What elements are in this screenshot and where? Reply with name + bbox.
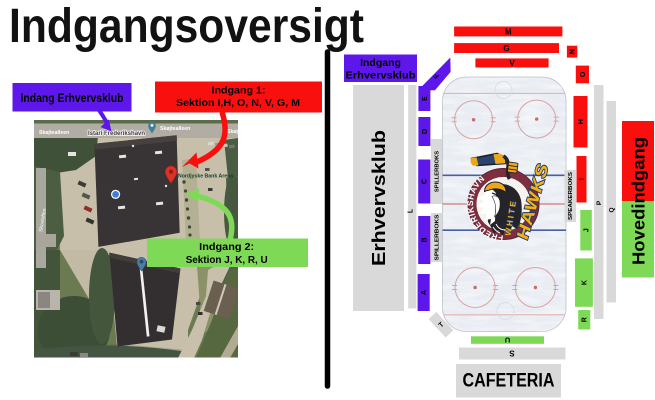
svg-text:SPEAKERBOKS: SPEAKERBOKS xyxy=(568,172,574,220)
svg-text:Sektion J, K, R, U: Sektion J, K, R, U xyxy=(186,254,268,266)
svg-text:Indgang: Indgang xyxy=(360,57,401,69)
svg-text:E: E xyxy=(422,96,429,101)
svg-text:Indgang 2:: Indgang 2: xyxy=(199,241,254,253)
svg-text:B: B xyxy=(422,237,429,242)
svg-text:Q: Q xyxy=(608,207,615,212)
svg-text:U: U xyxy=(505,335,510,344)
svg-text:R: R xyxy=(582,317,589,322)
svg-text:N: N xyxy=(570,49,577,54)
svg-text:Nordjyske Bank Arena: Nordjyske Bank Arena xyxy=(178,174,233,180)
svg-text:SPILLERBOKS: SPILLERBOKS xyxy=(435,151,441,192)
svg-text:SPILLERBOKS: SPILLERBOKS xyxy=(435,214,441,260)
svg-text:S: S xyxy=(509,349,515,358)
svg-text:Skøjtealleen: Skøjtealleen xyxy=(160,126,190,132)
svg-text:C: C xyxy=(422,179,429,184)
svg-text:Indgangsoversigt: Indgangsoversigt xyxy=(9,0,364,53)
svg-text:Indang Erhvervsklub: Indang Erhvervsklub xyxy=(21,93,124,105)
svg-text:J: J xyxy=(583,228,590,232)
svg-text:K: K xyxy=(581,280,588,285)
svg-text:A: A xyxy=(421,290,428,295)
svg-text:Sektion I,H, O, N, V, G, M: Sektion I,H, O, N, V, G, M xyxy=(176,97,300,109)
svg-text:M: M xyxy=(505,27,512,36)
svg-text:I: I xyxy=(579,178,586,180)
svg-text:D: D xyxy=(422,129,429,134)
svg-text:L: L xyxy=(407,208,414,213)
svg-text:Erhvervsklub: Erhvervsklub xyxy=(369,130,389,266)
svg-text:Istari Frederikshavn: Istari Frederikshavn xyxy=(88,131,145,137)
svg-text:Skøj: Skøj xyxy=(227,129,239,135)
svg-text:CAFETERIA: CAFETERIA xyxy=(463,370,555,392)
svg-text:Hovedindgang: Hovedindgang xyxy=(629,137,649,265)
svg-text:Indgang 1:: Indgang 1: xyxy=(212,85,266,97)
svg-text:Erhvervsklub: Erhvervsklub xyxy=(346,70,416,82)
svg-text:Skøjtealleen: Skøjtealleen xyxy=(39,130,69,136)
svg-text:V: V xyxy=(509,59,515,68)
svg-text:O: O xyxy=(580,71,587,77)
svg-text:P: P xyxy=(596,200,603,205)
svg-text:H: H xyxy=(578,119,585,124)
svg-text:G: G xyxy=(503,44,509,53)
